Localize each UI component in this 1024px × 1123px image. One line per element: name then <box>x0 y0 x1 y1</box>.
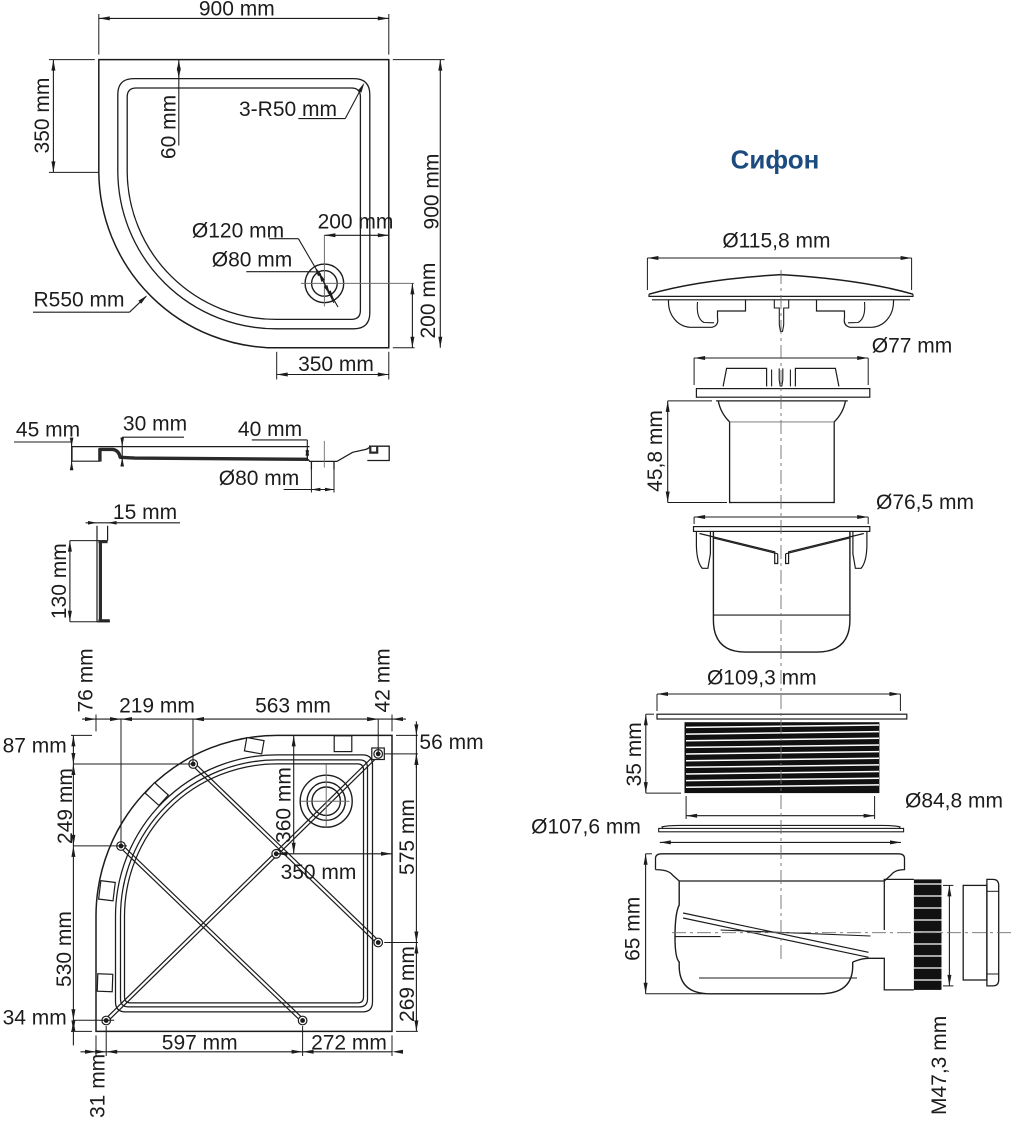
svg-text:56 mm: 56 mm <box>419 731 483 754</box>
svg-text:575 mm: 575 mm <box>396 799 419 875</box>
svg-text:900 mm: 900 mm <box>199 0 275 21</box>
svg-text:Ø109,3 mm: Ø109,3 mm <box>707 666 817 689</box>
svg-text:272 mm: 272 mm <box>311 1031 387 1054</box>
svg-text:200 mm: 200 mm <box>417 263 440 339</box>
svg-text:350 mm: 350 mm <box>31 78 54 154</box>
svg-text:530 mm: 530 mm <box>53 911 76 987</box>
svg-text:87 mm: 87 mm <box>3 735 67 758</box>
svg-text:350 mm: 350 mm <box>298 353 374 376</box>
svg-text:269 mm: 269 mm <box>396 946 419 1022</box>
svg-text:31 mm: 31 mm <box>87 1054 110 1118</box>
svg-text:Ø80 mm: Ø80 mm <box>212 249 293 272</box>
svg-text:219 mm: 219 mm <box>119 694 195 717</box>
svg-text:563 mm: 563 mm <box>255 694 331 717</box>
svg-text:76 mm: 76 mm <box>75 648 98 712</box>
svg-text:15 mm: 15 mm <box>113 501 177 524</box>
svg-text:R550 mm: R550 mm <box>33 288 124 311</box>
svg-text:360 mm: 360 mm <box>273 767 296 843</box>
svg-text:200 mm: 200 mm <box>318 211 394 234</box>
svg-text:130 mm: 130 mm <box>48 543 71 619</box>
svg-text:3-R50 mm: 3-R50 mm <box>239 98 337 121</box>
svg-text:Ø80 mm: Ø80 mm <box>219 467 300 490</box>
svg-text:Ø115,8 mm: Ø115,8 mm <box>722 230 830 253</box>
svg-text:30 mm: 30 mm <box>123 412 187 435</box>
svg-text:Ø77 mm: Ø77 mm <box>872 335 953 358</box>
svg-text:Сифон: Сифон <box>731 145 820 175</box>
svg-text:Ø107,6 mm: Ø107,6 mm <box>531 815 641 838</box>
svg-text:45,8 mm: 45,8 mm <box>644 410 667 492</box>
svg-text:Ø84,8 mm: Ø84,8 mm <box>905 790 1003 813</box>
svg-text:42 mm: 42 mm <box>372 648 395 712</box>
svg-text:34 mm: 34 mm <box>3 1007 67 1030</box>
svg-text:M47,3 mm: M47,3 mm <box>928 1016 951 1115</box>
svg-text:249 mm: 249 mm <box>54 768 77 844</box>
svg-text:597 mm: 597 mm <box>162 1031 238 1054</box>
svg-text:900 mm: 900 mm <box>421 154 444 230</box>
svg-text:35 mm: 35 mm <box>623 722 646 786</box>
svg-text:350 mm: 350 mm <box>281 861 357 884</box>
svg-text:40 mm: 40 mm <box>238 418 302 441</box>
svg-text:Ø76,5 mm: Ø76,5 mm <box>876 491 974 514</box>
svg-text:60 mm: 60 mm <box>158 95 181 159</box>
svg-text:65 mm: 65 mm <box>622 897 645 961</box>
